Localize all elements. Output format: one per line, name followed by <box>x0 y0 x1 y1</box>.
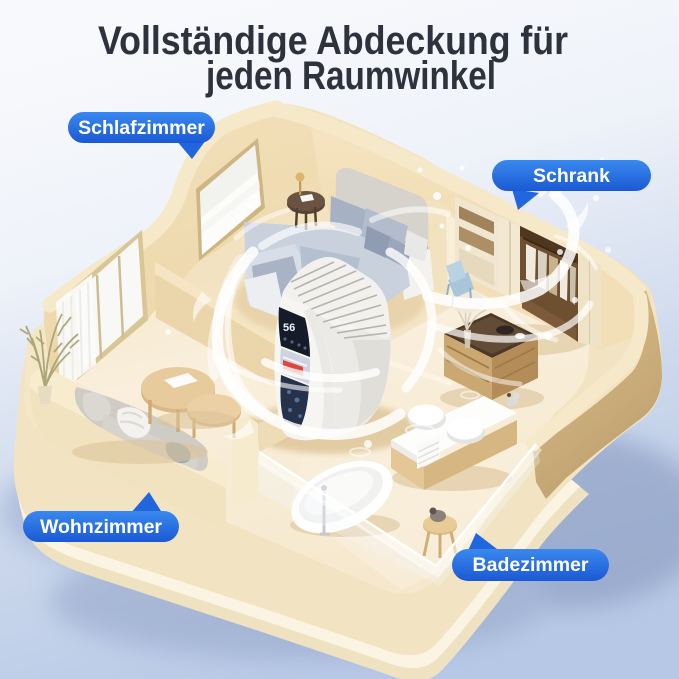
svg-text:Wohnzimmer: Wohnzimmer <box>40 516 162 538</box>
svg-text:56: 56 <box>283 322 295 334</box>
svg-text:Schrank: Schrank <box>533 165 610 187</box>
svg-text:Badezimmer: Badezimmer <box>473 554 589 576</box>
svg-text:jeden Raumwinkel: jeden Raumwinkel <box>205 54 496 98</box>
svg-text:Schlafzimmer: Schlafzimmer <box>78 117 205 139</box>
